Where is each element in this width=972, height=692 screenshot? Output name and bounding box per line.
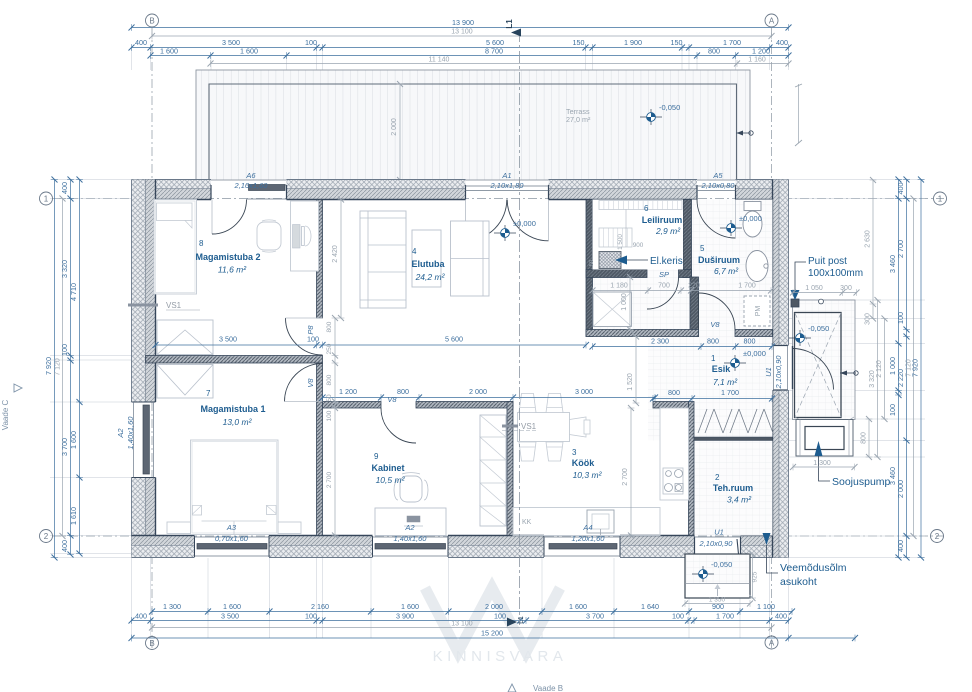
svg-text:3 000: 3 000 — [575, 387, 593, 396]
svg-text:3 700: 3 700 — [586, 612, 604, 621]
svg-text:800: 800 — [708, 47, 720, 56]
svg-text:1: 1 — [711, 354, 716, 363]
svg-text:800: 800 — [397, 387, 409, 396]
svg-text:2 420: 2 420 — [332, 245, 339, 263]
svg-text:A2: A2 — [404, 523, 415, 532]
svg-text:7 920: 7 920 — [911, 359, 920, 377]
svg-text:Magamistuba 1: Magamistuba 1 — [200, 404, 265, 414]
svg-text:Leiliruum: Leiliruum — [642, 215, 683, 225]
svg-text:400: 400 — [135, 612, 147, 621]
svg-text:±0,000: ±0,000 — [743, 349, 766, 358]
svg-text:Veemõdusõlm: Veemõdusõlm — [780, 562, 847, 574]
svg-text:A2: A2 — [116, 428, 125, 439]
svg-text:A: A — [769, 639, 775, 648]
svg-text:-0,050: -0,050 — [711, 560, 732, 569]
svg-text:2: 2 — [715, 473, 720, 482]
svg-text:1 700: 1 700 — [721, 388, 739, 397]
svg-text:2: 2 — [935, 532, 940, 541]
svg-text:A4: A4 — [582, 523, 592, 532]
svg-text:±0,000: ±0,000 — [513, 219, 536, 228]
svg-text:1 610: 1 610 — [69, 507, 78, 525]
svg-text:A6: A6 — [245, 171, 256, 180]
svg-text:KINNISVARA: KINNISVARA — [433, 648, 568, 665]
svg-text:-0,050: -0,050 — [659, 103, 680, 112]
svg-text:11 140: 11 140 — [429, 57, 450, 64]
svg-text:B: B — [149, 17, 154, 26]
svg-text:50: 50 — [589, 260, 595, 266]
svg-text:100: 100 — [326, 410, 333, 421]
svg-text:15 200: 15 200 — [481, 629, 503, 638]
svg-text:A: A — [769, 17, 775, 26]
svg-text:A5: A5 — [712, 171, 723, 180]
svg-text:1 300: 1 300 — [813, 460, 831, 467]
svg-text:2 120: 2 120 — [876, 360, 883, 378]
svg-text:400: 400 — [135, 38, 147, 47]
svg-text:Esik: Esik — [712, 364, 732, 374]
svg-text:A3: A3 — [226, 523, 237, 532]
svg-text:7,1 m²: 7,1 m² — [713, 377, 738, 387]
svg-text:220: 220 — [688, 283, 700, 290]
svg-text:100: 100 — [60, 344, 69, 356]
svg-text:400: 400 — [775, 612, 787, 621]
svg-text:L1: L1 — [505, 19, 514, 29]
svg-text:Vaade B: Vaade B — [533, 684, 563, 692]
svg-text:±0,000: ±0,000 — [739, 214, 762, 223]
svg-text:800: 800 — [326, 374, 333, 385]
svg-text:8 700: 8 700 — [485, 47, 503, 56]
svg-text:100x100mm: 100x100mm — [808, 268, 863, 279]
svg-text:V8: V8 — [306, 378, 315, 388]
svg-text:250: 250 — [326, 343, 333, 354]
svg-text:9: 9 — [374, 452, 379, 461]
svg-text:100: 100 — [888, 404, 897, 416]
svg-text:Kabinet: Kabinet — [371, 463, 404, 473]
svg-text:2,9 m²: 2,9 m² — [655, 226, 681, 236]
svg-text:1 600: 1 600 — [569, 602, 587, 611]
svg-text:VS1: VS1 — [166, 301, 182, 310]
svg-text:150: 150 — [573, 38, 585, 47]
svg-text:2 000: 2 000 — [391, 118, 398, 136]
svg-text:400: 400 — [60, 182, 69, 194]
svg-text:2 700: 2 700 — [622, 468, 629, 486]
svg-text:1 180: 1 180 — [610, 283, 628, 290]
svg-text:100: 100 — [307, 335, 319, 344]
svg-text:5 600: 5 600 — [445, 335, 463, 344]
svg-text:Puit post: Puit post — [808, 256, 847, 267]
svg-text:7 120: 7 120 — [55, 358, 62, 376]
svg-text:5: 5 — [700, 244, 705, 253]
svg-text:900: 900 — [633, 242, 644, 249]
svg-text:925: 925 — [752, 571, 759, 582]
svg-text:4 710: 4 710 — [69, 283, 78, 301]
svg-text:800: 800 — [707, 337, 719, 346]
svg-text:2 300: 2 300 — [651, 337, 669, 346]
svg-text:300: 300 — [840, 285, 852, 292]
svg-text:V8: V8 — [387, 395, 397, 404]
svg-text:2 630: 2 630 — [865, 230, 872, 248]
svg-text:7 920: 7 920 — [44, 357, 53, 375]
svg-text:3 500: 3 500 — [221, 612, 239, 621]
svg-text:B: B — [149, 639, 154, 648]
svg-text:3,4 m²: 3,4 m² — [727, 495, 752, 505]
svg-text:1 700: 1 700 — [716, 612, 734, 621]
svg-text:Duširuum: Duširuum — [698, 255, 740, 265]
svg-text:800: 800 — [668, 388, 680, 397]
svg-text:1 700: 1 700 — [723, 38, 741, 47]
svg-text:1 000: 1 000 — [621, 293, 628, 311]
svg-text:1 640: 1 640 — [641, 602, 659, 611]
svg-text:2,10x0,80: 2,10x0,80 — [701, 181, 736, 190]
svg-text:700: 700 — [658, 283, 670, 290]
svg-text:1 700: 1 700 — [738, 283, 756, 290]
svg-text:1 600: 1 600 — [223, 602, 241, 611]
svg-text:24,2 m²: 24,2 m² — [415, 272, 446, 282]
svg-text:KK: KK — [522, 519, 532, 526]
svg-text:2 700: 2 700 — [326, 471, 333, 488]
svg-text:U1: U1 — [764, 367, 773, 377]
svg-text:10,3 m²: 10,3 m² — [573, 470, 603, 480]
svg-text:3 320: 3 320 — [869, 370, 876, 388]
svg-text:Magamistuba 2: Magamistuba 2 — [195, 252, 260, 262]
svg-text:3 320: 3 320 — [60, 260, 69, 278]
svg-text:4: 4 — [412, 247, 417, 256]
svg-text:13 900: 13 900 — [452, 18, 474, 27]
svg-text:1: 1 — [938, 195, 943, 204]
svg-text:PM: PM — [755, 306, 762, 317]
svg-text:1 100: 1 100 — [757, 602, 775, 611]
svg-text:150: 150 — [671, 38, 683, 47]
svg-text:El.keris: El.keris — [650, 256, 683, 267]
svg-text:100: 100 — [305, 612, 317, 621]
svg-text:6,7 m²: 6,7 m² — [714, 266, 739, 276]
svg-text:Soojuspump: Soojuspump — [832, 476, 891, 488]
svg-text:2,10x0,90: 2,10x0,90 — [774, 355, 783, 390]
svg-text:2 160: 2 160 — [311, 602, 329, 611]
svg-text:L1: L1 — [518, 616, 525, 624]
svg-text:U1: U1 — [714, 528, 724, 537]
svg-text:1,40x1,60: 1,40x1,60 — [394, 534, 428, 543]
svg-text:Vaade C: Vaade C — [1, 400, 10, 431]
svg-text:3 500: 3 500 — [219, 335, 237, 344]
svg-text:50: 50 — [326, 394, 333, 402]
svg-text:2,10x1,80: 2,10x1,80 — [490, 181, 525, 190]
svg-text:400: 400 — [60, 540, 69, 552]
svg-text:1,40x1,60: 1,40x1,60 — [126, 416, 135, 450]
svg-text:10,5 m²: 10,5 m² — [376, 475, 406, 485]
svg-text:400: 400 — [776, 38, 788, 47]
svg-text:100: 100 — [896, 312, 905, 324]
svg-text:SP: SP — [659, 270, 669, 279]
svg-text:100: 100 — [305, 38, 317, 47]
svg-text:1,20x1,60: 1,20x1,60 — [572, 534, 606, 543]
svg-text:11,6 m²: 11,6 m² — [218, 265, 247, 275]
svg-text:VS1: VS1 — [521, 422, 537, 431]
svg-text:27,0 m²: 27,0 m² — [566, 115, 591, 124]
svg-text:2 220: 2 220 — [896, 369, 905, 387]
svg-text:V8: V8 — [710, 320, 720, 329]
svg-text:1 160: 1 160 — [748, 57, 766, 64]
svg-text:3 500: 3 500 — [222, 38, 240, 47]
svg-text:2 000: 2 000 — [485, 602, 503, 611]
svg-text:800: 800 — [861, 432, 868, 444]
svg-text:A1: A1 — [501, 171, 511, 180]
svg-text:1 200: 1 200 — [752, 47, 770, 56]
svg-text:2 000: 2 000 — [469, 387, 487, 396]
svg-text:Teh.ruum: Teh.ruum — [713, 483, 753, 493]
svg-text:400: 400 — [896, 183, 905, 195]
svg-text:7: 7 — [206, 389, 211, 398]
svg-text:1 300: 1 300 — [163, 602, 181, 611]
svg-text:2: 2 — [44, 532, 49, 541]
svg-text:2 700: 2 700 — [896, 240, 905, 258]
svg-text:1 050: 1 050 — [805, 285, 823, 292]
svg-text:900: 900 — [712, 602, 724, 611]
svg-text:1 600: 1 600 — [401, 602, 419, 611]
svg-text:Köök: Köök — [572, 458, 595, 468]
svg-text:Elutuba: Elutuba — [412, 259, 446, 269]
svg-text:1 520: 1 520 — [627, 373, 634, 391]
svg-text:P8: P8 — [306, 325, 315, 335]
svg-text:13 100: 13 100 — [451, 29, 473, 36]
svg-text:2 000: 2 000 — [896, 480, 905, 498]
svg-text:400: 400 — [896, 540, 905, 552]
svg-text:300: 300 — [865, 313, 872, 325]
svg-text:800: 800 — [326, 321, 333, 332]
svg-text:6: 6 — [644, 204, 649, 213]
svg-text:8: 8 — [199, 239, 204, 248]
svg-text:3 900: 3 900 — [396, 612, 414, 621]
svg-text:-0,050: -0,050 — [808, 324, 829, 333]
svg-text:1 600: 1 600 — [160, 47, 178, 56]
svg-text:1 500: 1 500 — [617, 234, 624, 250]
svg-text:2,10x0,90: 2,10x0,90 — [699, 539, 734, 548]
svg-text:0,70x1,60: 0,70x1,60 — [215, 534, 249, 543]
svg-text:800: 800 — [744, 337, 756, 346]
svg-text:1 600: 1 600 — [69, 431, 78, 449]
svg-text:2,10x1,60: 2,10x1,60 — [234, 181, 269, 190]
svg-text:100: 100 — [672, 612, 684, 621]
svg-text:3 700: 3 700 — [60, 438, 69, 456]
svg-text:1 600: 1 600 — [240, 47, 258, 56]
svg-text:3: 3 — [572, 448, 577, 457]
svg-text:13 100: 13 100 — [451, 621, 473, 628]
svg-text:1: 1 — [44, 195, 49, 204]
svg-text:100: 100 — [494, 612, 506, 621]
svg-text:1 900: 1 900 — [624, 38, 642, 47]
svg-text:1 200: 1 200 — [339, 387, 357, 396]
svg-text:asukoht: asukoht — [780, 576, 817, 588]
svg-text:13,0 m²: 13,0 m² — [223, 417, 253, 427]
